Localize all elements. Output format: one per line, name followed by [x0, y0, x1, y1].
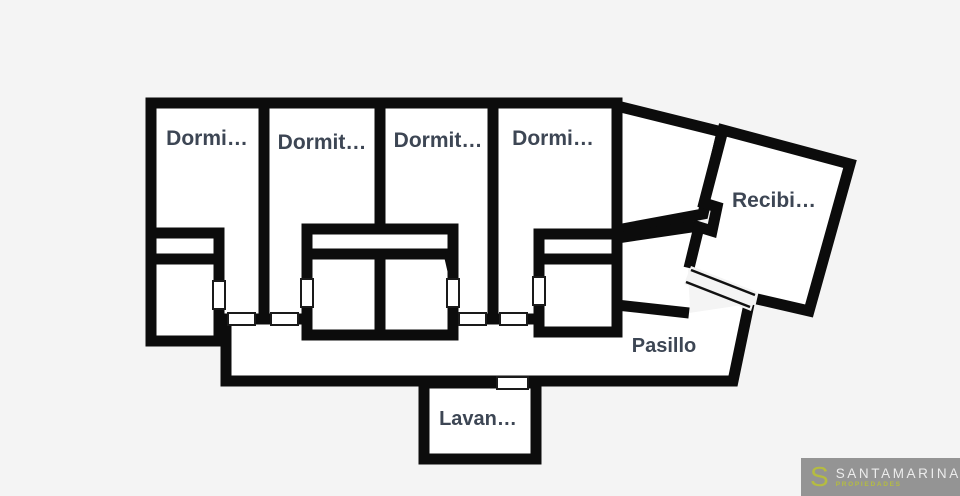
brand-subtitle: PROPIEDADES: [836, 481, 960, 489]
brand-initial-icon: S: [810, 463, 829, 491]
door-hall-4: [500, 313, 527, 325]
watermark-logo: S SANTAMARINA PROPIEDADES: [801, 458, 960, 496]
brand-text: SANTAMARINA PROPIEDADES: [836, 467, 960, 489]
door-bath2: [301, 279, 313, 307]
label-laundry: Lavan…: [439, 408, 517, 430]
door-hall-3: [459, 313, 486, 325]
label-bedroom4: Dormi…: [512, 127, 594, 150]
floorplan-page: Dormi… Dormit… Dormit… Dormi… Recibi… Pa…: [0, 0, 960, 496]
room-bath1: [151, 259, 219, 341]
floor-plan: Dormi… Dormit… Dormit… Dormi… Recibi… Pa…: [0, 0, 960, 496]
room-entry-wedge: [617, 106, 722, 230]
room-bath4: [539, 234, 617, 332]
door-bath3: [447, 279, 459, 307]
brand-name: SANTAMARINA: [836, 467, 960, 481]
door-bath4: [533, 277, 545, 305]
label-reception: Recibi…: [732, 189, 816, 212]
label-bedroom2: Dormit…: [278, 131, 367, 154]
door-bath1: [213, 281, 225, 309]
door-laundry: [497, 377, 528, 389]
door-hall-1: [228, 313, 255, 325]
door-hall-2: [271, 313, 298, 325]
label-bedroom3: Dormit…: [394, 129, 483, 152]
label-bedroom1: Dormi…: [166, 127, 248, 150]
label-hallway: Pasillo: [632, 335, 696, 357]
